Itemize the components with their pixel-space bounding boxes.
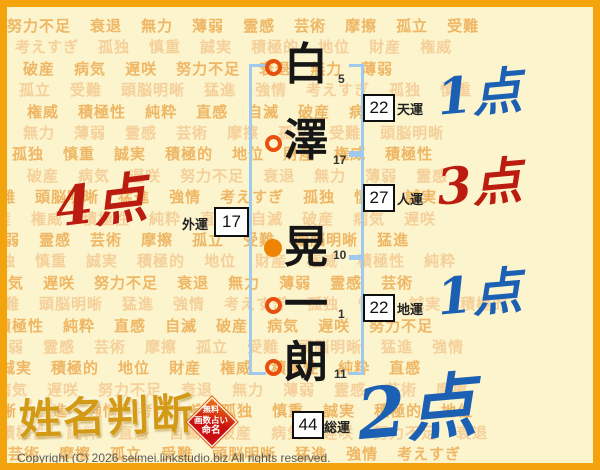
name-character: 晃 bbox=[281, 226, 331, 270]
watermark-word: 積極的 bbox=[165, 146, 213, 163]
name-character: 朗 bbox=[281, 341, 331, 385]
watermark-row: 薄弱霊感芸術摩擦孤立受難頭脳明晰猛進強情 bbox=[0, 336, 483, 357]
watermark-word: 猛進 bbox=[377, 232, 409, 249]
luck-number-box-chiun: 22 bbox=[363, 294, 395, 322]
watermark-word: 純粋 bbox=[149, 211, 181, 228]
watermark-word: 慎重 bbox=[63, 146, 95, 163]
bracket-chiun bbox=[349, 257, 364, 375]
watermark-word: 病気 bbox=[0, 275, 24, 292]
watermark-word: 薄弱 bbox=[192, 18, 224, 35]
watermark-word: 霊感 bbox=[43, 339, 75, 356]
red-seal-badge: 無料 画数占い 命名 bbox=[184, 394, 238, 448]
watermark-word: 純粋 bbox=[63, 318, 95, 335]
watermark-word: 自滅 bbox=[0, 168, 8, 185]
watermark-word: 霊感 bbox=[243, 18, 275, 35]
watermark-word: 無力 bbox=[314, 168, 346, 185]
watermark-word: 努力不足 bbox=[180, 168, 244, 185]
watermark-word: 地位 bbox=[204, 253, 236, 270]
watermark-row: 努力不足衰退無力薄弱霊感芸術摩擦孤立受難 bbox=[7, 15, 498, 36]
watermark-word: 孤独 bbox=[98, 39, 130, 56]
seal-line-1: 無料 bbox=[203, 405, 219, 415]
watermark-word: 摩擦 bbox=[345, 18, 377, 35]
watermark-word: 財産 bbox=[369, 39, 401, 56]
stroke-count: 1 bbox=[338, 307, 345, 321]
stroke-count: 17 bbox=[333, 153, 346, 167]
watermark-word: 直感 bbox=[114, 318, 146, 335]
watermark-word: 無力 bbox=[141, 18, 173, 35]
name-character: 白 bbox=[281, 43, 331, 87]
watermark-row: 強情考えすぎ孤独慎重誠実積極的地位財産権威 bbox=[0, 36, 471, 57]
watermark-word: 猛進 bbox=[204, 82, 236, 99]
watermark-word: 受難 bbox=[0, 296, 20, 313]
watermark-word: 強情 bbox=[169, 189, 201, 206]
watermark-word: 権威 bbox=[420, 39, 452, 56]
name-character: 澤 bbox=[281, 119, 331, 163]
watermark-word: 直感 bbox=[196, 104, 228, 121]
watermark-row: 孤独慎重誠実積極的地位財産権威積極性純粋 bbox=[0, 250, 475, 271]
watermark-word: 薄弱 bbox=[0, 339, 24, 356]
bracket-gaiun bbox=[249, 64, 266, 375]
watermark-word: 誠実 bbox=[200, 39, 232, 56]
watermark-word: 猛進 bbox=[122, 296, 154, 313]
watermark-word: 芸術 bbox=[381, 275, 413, 292]
watermark-word: 孤独 bbox=[12, 146, 44, 163]
watermark-word: 孤独 bbox=[0, 253, 16, 270]
watermark-word: 積極性 bbox=[357, 253, 405, 270]
watermark-word: 薄弱 bbox=[365, 168, 397, 185]
watermark-word: 薄弱 bbox=[361, 61, 393, 78]
luck-label-tenun: 天運 bbox=[397, 99, 423, 118]
luck-number-box-jinun: 27 bbox=[363, 184, 395, 212]
watermark-word: 孤立 bbox=[396, 18, 428, 35]
ring-marker bbox=[265, 359, 282, 376]
watermark-word: 財産 bbox=[0, 104, 8, 121]
luck-number-box-gaiun: 17 bbox=[214, 207, 249, 237]
watermark-word: 遅咲 bbox=[404, 211, 436, 228]
copyright-text: Copyright (C) 2026 seimei.linkstudio.biz… bbox=[17, 451, 330, 465]
watermark-word: 権威 bbox=[220, 360, 252, 377]
watermark-word: 自滅 bbox=[165, 318, 197, 335]
watermark-word: 誠実 bbox=[0, 360, 32, 377]
site-logo[interactable]: 姓名判断 bbox=[18, 392, 195, 442]
seimei-result-page: 努力不足衰退無力薄弱霊感芸術摩擦孤立受難強情考えすぎ孤独慎重誠実積極的地位財産権… bbox=[0, 0, 600, 470]
watermark-word: 誠実 bbox=[86, 253, 118, 270]
watermark-word: 努力不足 bbox=[176, 61, 240, 78]
watermark-word: 孤立 bbox=[196, 339, 228, 356]
ring-marker bbox=[265, 135, 282, 152]
watermark-word: 頭脳明晰 bbox=[380, 125, 444, 142]
watermark-word: 薄弱 bbox=[74, 125, 106, 142]
watermark-word: 頭脳明晰 bbox=[39, 296, 103, 313]
watermark-word: 努力不足 bbox=[7, 18, 71, 35]
bracket-jinun bbox=[349, 154, 364, 258]
watermark-word: 衰退 bbox=[263, 168, 295, 185]
stroke-count: 11 bbox=[334, 367, 347, 381]
watermark-word: 権威 bbox=[27, 104, 59, 121]
luck-label-gaiun: 外運 bbox=[182, 214, 208, 233]
watermark-word: 努力不足 bbox=[94, 275, 158, 292]
score-tenun: 1点 bbox=[435, 65, 524, 122]
watermark-word: 強情 bbox=[173, 296, 205, 313]
watermark-word: 受難 bbox=[70, 82, 102, 99]
watermark-row: 摩擦孤立受難頭脳明晰猛進強情考えすぎ孤独慎重 bbox=[0, 79, 491, 100]
watermark-word: 自滅 bbox=[0, 61, 4, 78]
stroke-count: 5 bbox=[338, 72, 345, 86]
filled-dot-marker bbox=[264, 239, 282, 257]
watermark-word: 財産 bbox=[169, 360, 201, 377]
watermark-word: 摩擦 bbox=[141, 232, 173, 249]
watermark-word: 遅咲 bbox=[43, 275, 75, 292]
watermark-word: 病気 bbox=[74, 61, 106, 78]
watermark-word: 純粋 bbox=[145, 104, 177, 121]
watermark-word: 財産 bbox=[0, 211, 12, 228]
watermark-word: 遅咲 bbox=[125, 61, 157, 78]
watermark-word: 無力 bbox=[23, 125, 55, 142]
score-jinun: 3点 bbox=[435, 155, 524, 212]
seal-text: 無料 画数占い 命名 bbox=[184, 394, 238, 448]
ring-marker bbox=[265, 59, 282, 76]
bracket-tenun bbox=[349, 64, 364, 154]
ring-marker bbox=[265, 297, 282, 314]
watermark-word: 衰退 bbox=[90, 18, 122, 35]
luck-label-soun: 総運 bbox=[324, 417, 350, 436]
watermark-word: 積極的 bbox=[137, 253, 185, 270]
watermark-word: 頭脳明晰 bbox=[0, 403, 17, 420]
watermark-word: 頭脳明晰 bbox=[121, 82, 185, 99]
score-soun: 2点 bbox=[354, 370, 478, 450]
watermark-word: 摩擦 bbox=[145, 339, 177, 356]
watermark-word: 霊感 bbox=[125, 125, 157, 142]
watermark-word: 積極性 bbox=[0, 318, 44, 335]
watermark-word: 積極性 bbox=[78, 104, 126, 121]
stroke-count: 10 bbox=[333, 248, 346, 262]
watermark-word: 受難 bbox=[0, 189, 16, 206]
watermark-word: 衰退 bbox=[0, 125, 4, 142]
name-character: 一 bbox=[281, 283, 331, 327]
watermark-word: 薄弱 bbox=[0, 232, 20, 249]
seal-line-2: 画数占い bbox=[194, 415, 228, 425]
watermark-word: 積極性 bbox=[385, 146, 433, 163]
watermark-word: 芸術 bbox=[294, 18, 326, 35]
watermark-word: 破産 bbox=[216, 318, 248, 335]
watermark-word: 衰退 bbox=[177, 275, 209, 292]
score-chiun: 1点 bbox=[435, 265, 524, 322]
watermark-row: 破産病気遅咲努力不足衰退無力薄弱霊感芸術 bbox=[0, 272, 432, 293]
watermark-row: 考えすぎ孤独慎重誠実積極的地位財産権威積極性 bbox=[0, 143, 452, 164]
watermark-word: 地位 bbox=[118, 360, 150, 377]
watermark-row: 衰退無力薄弱霊感芸術摩擦孤立受難頭脳明晰 bbox=[0, 122, 463, 143]
luck-label-chiun: 地運 bbox=[397, 299, 423, 318]
watermark-word: 孤立 bbox=[19, 82, 51, 99]
score-gaiun: 4点 bbox=[52, 170, 149, 235]
watermark-word: 猛進 bbox=[381, 339, 413, 356]
watermark-word: 受難 bbox=[447, 18, 479, 35]
luck-label-jinun: 人運 bbox=[397, 189, 423, 208]
watermark-word: 芸術 bbox=[94, 339, 126, 356]
watermark-word: 芸術 bbox=[176, 125, 208, 142]
watermark-word: 慎重 bbox=[35, 253, 67, 270]
watermark-word: 誠実 bbox=[114, 146, 146, 163]
seal-line-3: 命名 bbox=[201, 425, 220, 436]
watermark-word: 強情 bbox=[432, 339, 464, 356]
watermark-word: 積極的 bbox=[51, 360, 99, 377]
watermark-word: 孤独 bbox=[303, 189, 335, 206]
luck-number-box-tenun: 22 bbox=[363, 94, 395, 122]
watermark-word: 慎重 bbox=[149, 39, 181, 56]
watermark-row: 地位財産権威積極性純粋直感自滅破産病気 bbox=[0, 101, 400, 122]
watermark-word: 破産 bbox=[23, 61, 55, 78]
watermark-word: 考えすぎ bbox=[15, 39, 79, 56]
luck-number-box-soun: 44 bbox=[292, 411, 324, 439]
